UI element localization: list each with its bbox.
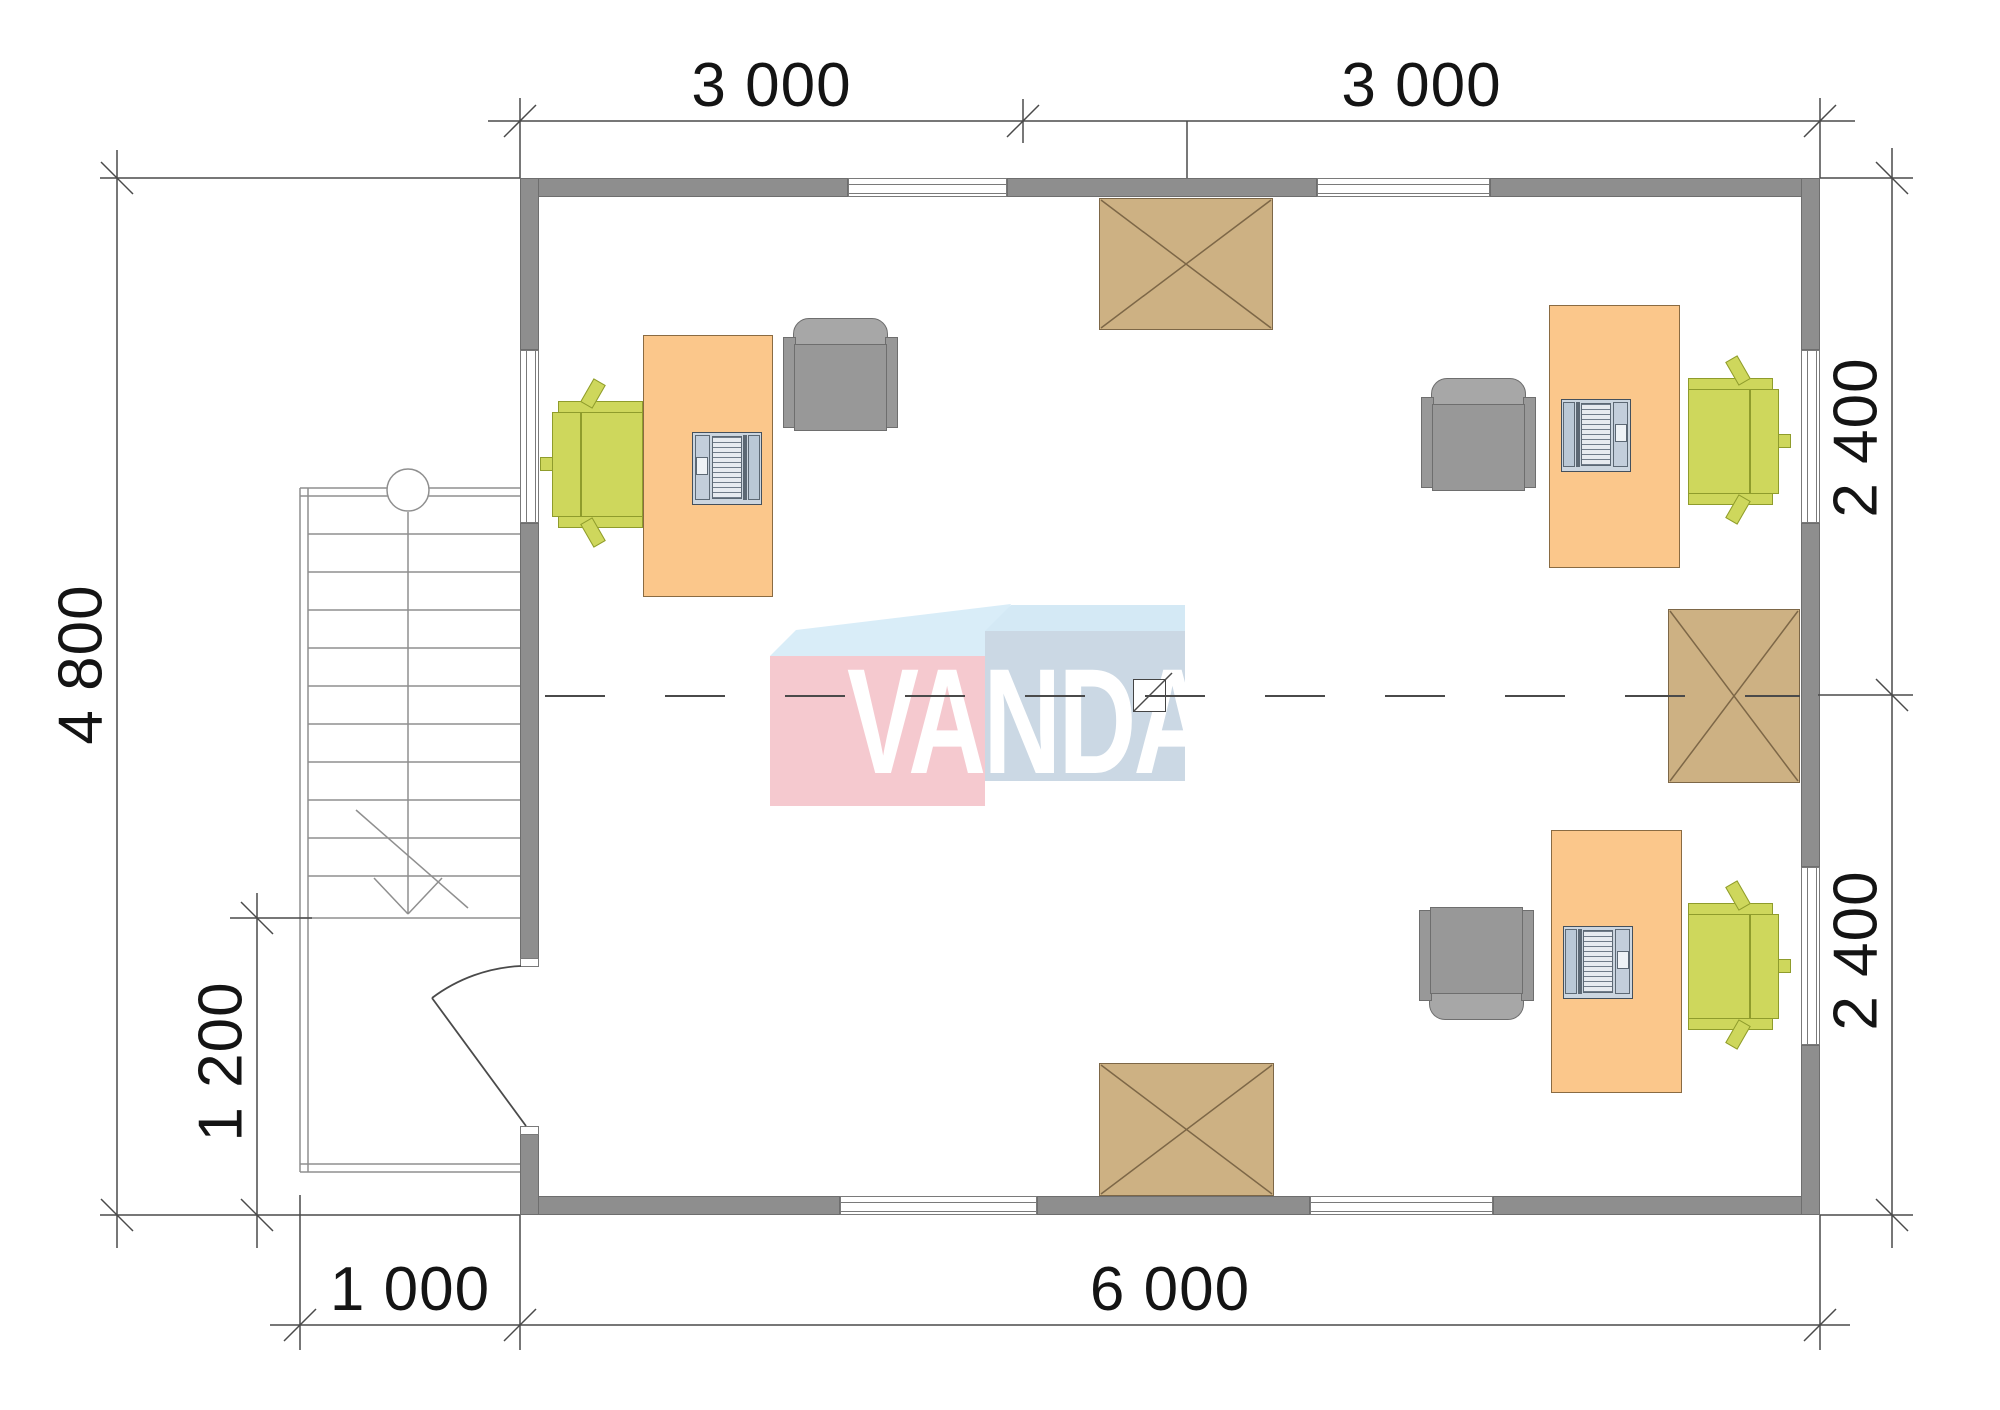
wall-bottom [520, 1196, 840, 1215]
dim-label-annex: 1 200 [186, 912, 257, 1212]
window-bottom-2 [1310, 1196, 1493, 1215]
laptop-trackpad [696, 457, 708, 475]
armchair-seat [794, 344, 887, 431]
laptop-top-right [1561, 399, 1631, 472]
stair-break-line [356, 810, 468, 908]
chair-headrest [540, 457, 553, 471]
x-marked-table-bottom [1099, 1063, 1274, 1196]
laptop-keyboard [1583, 930, 1613, 993]
armchair-top-right [1421, 378, 1536, 492]
chair-backrest-line [1750, 390, 1752, 493]
office-chair-top-left [540, 380, 646, 546]
dim-label-right-2: 2 400 [1821, 801, 1892, 1101]
dim-label-right-1: 2 400 [1821, 288, 1892, 588]
stair-arrow [408, 878, 442, 914]
floor-plan: VANDA [0, 0, 2000, 1410]
laptop-screen [748, 435, 760, 500]
laptop-hinge [1578, 929, 1582, 994]
laptop-top-left [692, 432, 762, 505]
chair-headrest [1778, 434, 1791, 448]
dim-label-top-1: 3 000 [520, 50, 1023, 121]
office-chair-top-right [1685, 357, 1791, 523]
door-jamb-top [520, 958, 539, 967]
wall-top [1490, 178, 1820, 197]
chair-armrest [558, 516, 643, 528]
laptop-hinge [743, 435, 747, 500]
laptop-keyboard [712, 436, 742, 499]
stair-start-circle [387, 469, 429, 511]
window-left [520, 350, 539, 523]
wall-left [520, 1128, 539, 1215]
wall-bottom [1493, 1196, 1820, 1215]
window-top-1 [848, 178, 1007, 197]
chair-backrest-line [1750, 915, 1752, 1018]
x-marked-table-right [1668, 609, 1800, 783]
wall-top [1007, 178, 1317, 197]
chair-seat [552, 412, 643, 517]
chair-backrest-line [580, 413, 582, 516]
chair-armrest [1688, 1018, 1773, 1030]
laptop-hinge [1576, 402, 1580, 467]
logo-top-face-right [985, 605, 1185, 631]
chair-seat [1688, 389, 1779, 494]
chair-headrest [1778, 959, 1791, 973]
chair-seat [1688, 914, 1779, 1019]
window-right-1 [1801, 350, 1820, 523]
window-top-2 [1317, 178, 1490, 197]
staircase [300, 469, 520, 1172]
wall-right [1801, 1045, 1820, 1215]
dim-label-bottom-2: 6 000 [1020, 1254, 1320, 1325]
logo-text: VANDA [847, 646, 1135, 796]
wall-right [1801, 178, 1820, 350]
armchair-bottom-right [1419, 906, 1534, 1020]
axis-marker-square [1133, 679, 1166, 712]
door-swing-arc [432, 966, 521, 998]
window-bottom-1 [840, 1196, 1037, 1215]
laptop-trackpad [1615, 424, 1627, 442]
laptop-screen [1565, 929, 1577, 994]
dim-label-top-2: 3 000 [1023, 50, 1820, 121]
wall-right [1801, 523, 1820, 867]
armchair-seat [1430, 907, 1523, 994]
wall-bottom [1037, 1196, 1310, 1215]
wall-top [520, 178, 848, 197]
laptop-trackpad [1617, 951, 1629, 969]
wall-left [520, 178, 539, 350]
wall-left [520, 523, 539, 965]
door-leaf [432, 998, 526, 1126]
laptop-keyboard [1581, 403, 1611, 466]
door-jamb-bottom [520, 1126, 539, 1135]
laptop-screen [1563, 402, 1575, 467]
armchair-seat [1432, 404, 1525, 491]
laptop-bottom-right [1563, 926, 1633, 999]
entry-door [432, 966, 526, 1126]
armchair-top-left [783, 318, 898, 432]
window-right-2 [1801, 867, 1820, 1045]
dim-label-bottom-1: 1 000 [260, 1254, 560, 1325]
stair-arrow [374, 878, 408, 914]
chair-armrest [1688, 493, 1773, 505]
x-marked-table-top [1099, 198, 1273, 330]
dim-label-left: 4 800 [46, 465, 117, 865]
office-chair-bottom-right [1685, 882, 1791, 1048]
